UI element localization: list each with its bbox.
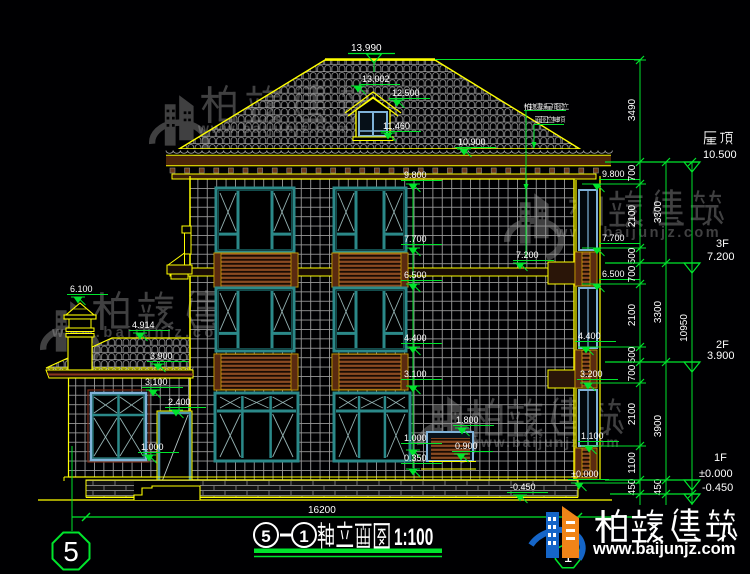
svg-text:7.700: 7.700 [404, 234, 427, 244]
svg-text:6.500: 6.500 [602, 269, 625, 279]
svg-text:450: 450 [653, 478, 664, 495]
svg-text:1.000: 1.000 [141, 442, 164, 452]
svg-text:1F: 1F [714, 452, 727, 464]
svg-text:-0.450: -0.450 [702, 482, 733, 494]
svg-text:5: 5 [63, 536, 79, 567]
svg-text:5: 5 [261, 527, 270, 546]
svg-text:4.914: 4.914 [132, 320, 155, 330]
svg-text:±0.000: ±0.000 [571, 469, 598, 479]
svg-text:2.400: 2.400 [168, 397, 191, 407]
svg-text:±0.000: ±0.000 [699, 468, 733, 480]
svg-text:3300: 3300 [653, 300, 664, 323]
svg-text:10.500: 10.500 [703, 149, 737, 161]
svg-text:2100: 2100 [627, 402, 638, 425]
svg-text:500: 500 [627, 247, 638, 264]
svg-text:1.100: 1.100 [581, 431, 604, 441]
svg-text:2100: 2100 [627, 204, 638, 227]
svg-text:3.200: 3.200 [580, 369, 603, 379]
svg-text:-0.450: -0.450 [510, 482, 536, 492]
svg-text:11.460: 11.460 [383, 121, 410, 131]
svg-text:700: 700 [627, 164, 638, 181]
svg-text:3.900: 3.900 [707, 350, 735, 362]
svg-text:4.400: 4.400 [578, 331, 601, 341]
svg-text:0.900: 0.900 [455, 441, 478, 451]
svg-text:3.900: 3.900 [150, 351, 173, 361]
svg-text:3.100: 3.100 [404, 369, 427, 379]
svg-text:700: 700 [627, 265, 638, 282]
svg-text:3.100: 3.100 [145, 377, 168, 387]
svg-text:3300: 3300 [653, 200, 664, 223]
svg-text:6.500: 6.500 [404, 270, 427, 280]
svg-text:6.100: 6.100 [70, 284, 93, 294]
svg-text:0.350: 0.350 [404, 453, 427, 463]
svg-text:13.990: 13.990 [351, 43, 382, 54]
svg-text:1:100: 1:100 [394, 525, 433, 551]
svg-text:9.800: 9.800 [404, 170, 427, 180]
svg-text:4.400: 4.400 [404, 333, 427, 343]
svg-text:2100: 2100 [627, 303, 638, 326]
svg-text:1100: 1100 [627, 452, 638, 474]
svg-text:3F: 3F [716, 238, 729, 250]
svg-text:10950: 10950 [679, 314, 690, 342]
svg-text:13.002: 13.002 [362, 74, 390, 84]
svg-text:10.900: 10.900 [458, 137, 486, 147]
svg-text:www.baijunjz.com: www.baijunjz.com [592, 540, 735, 558]
svg-text:1.000: 1.000 [404, 433, 427, 443]
svg-text:3490: 3490 [627, 98, 638, 121]
svg-text:700: 700 [627, 364, 638, 381]
svg-text:9.800: 9.800 [602, 169, 625, 179]
svg-text:1.800: 1.800 [456, 415, 479, 425]
svg-text:16200: 16200 [308, 505, 336, 516]
svg-text:3900: 3900 [653, 414, 664, 437]
svg-text:7.700: 7.700 [602, 233, 625, 243]
svg-text:7.200: 7.200 [516, 250, 539, 260]
svg-text:500: 500 [627, 346, 638, 363]
svg-text:12.500: 12.500 [392, 88, 420, 98]
svg-text:450: 450 [627, 478, 638, 495]
svg-text:1: 1 [299, 527, 308, 546]
svg-text:7.200: 7.200 [707, 251, 735, 263]
